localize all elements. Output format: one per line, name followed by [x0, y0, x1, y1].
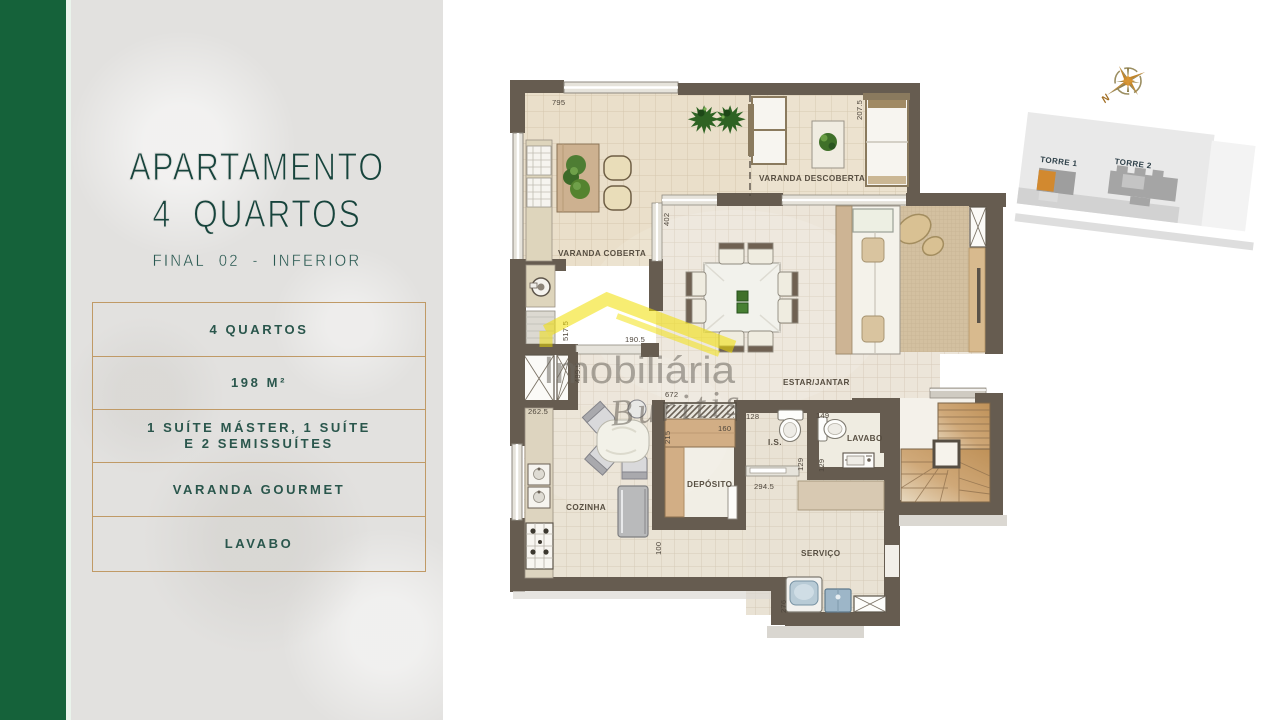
svg-text:262.5: 262.5	[528, 407, 548, 416]
svg-text:215: 215	[663, 431, 672, 444]
svg-text:128: 128	[746, 412, 759, 421]
svg-text:149: 149	[816, 411, 829, 420]
svg-text:160: 160	[718, 424, 731, 433]
svg-text:207.5: 207.5	[855, 100, 864, 120]
svg-text:129: 129	[817, 459, 826, 472]
svg-text:Imobiliária: Imobiliária	[543, 350, 736, 392]
svg-text:402: 402	[662, 213, 671, 226]
svg-text:VARANDA COBERTA: VARANDA COBERTA	[558, 249, 646, 258]
svg-text:DEPÓSITO: DEPÓSITO	[687, 478, 733, 489]
svg-text:100: 100	[654, 542, 663, 555]
svg-text:SERVIÇO: SERVIÇO	[801, 549, 841, 558]
svg-text:294.5: 294.5	[754, 482, 774, 491]
svg-text:795: 795	[552, 98, 565, 107]
svg-text:I.S.: I.S.	[768, 438, 782, 447]
svg-text:ESTAR/JANTAR: ESTAR/JANTAR	[783, 378, 850, 387]
svg-text:LAVABO: LAVABO	[847, 434, 883, 443]
svg-text:VARANDA DESCOBERTA: VARANDA DESCOBERTA	[759, 174, 865, 183]
svg-text:N: N	[1100, 92, 1113, 106]
svg-text:190.5: 190.5	[625, 335, 645, 344]
svg-text:129: 129	[796, 458, 805, 471]
svg-text:276: 276	[779, 600, 788, 613]
svg-text:COZINHA: COZINHA	[566, 503, 606, 512]
